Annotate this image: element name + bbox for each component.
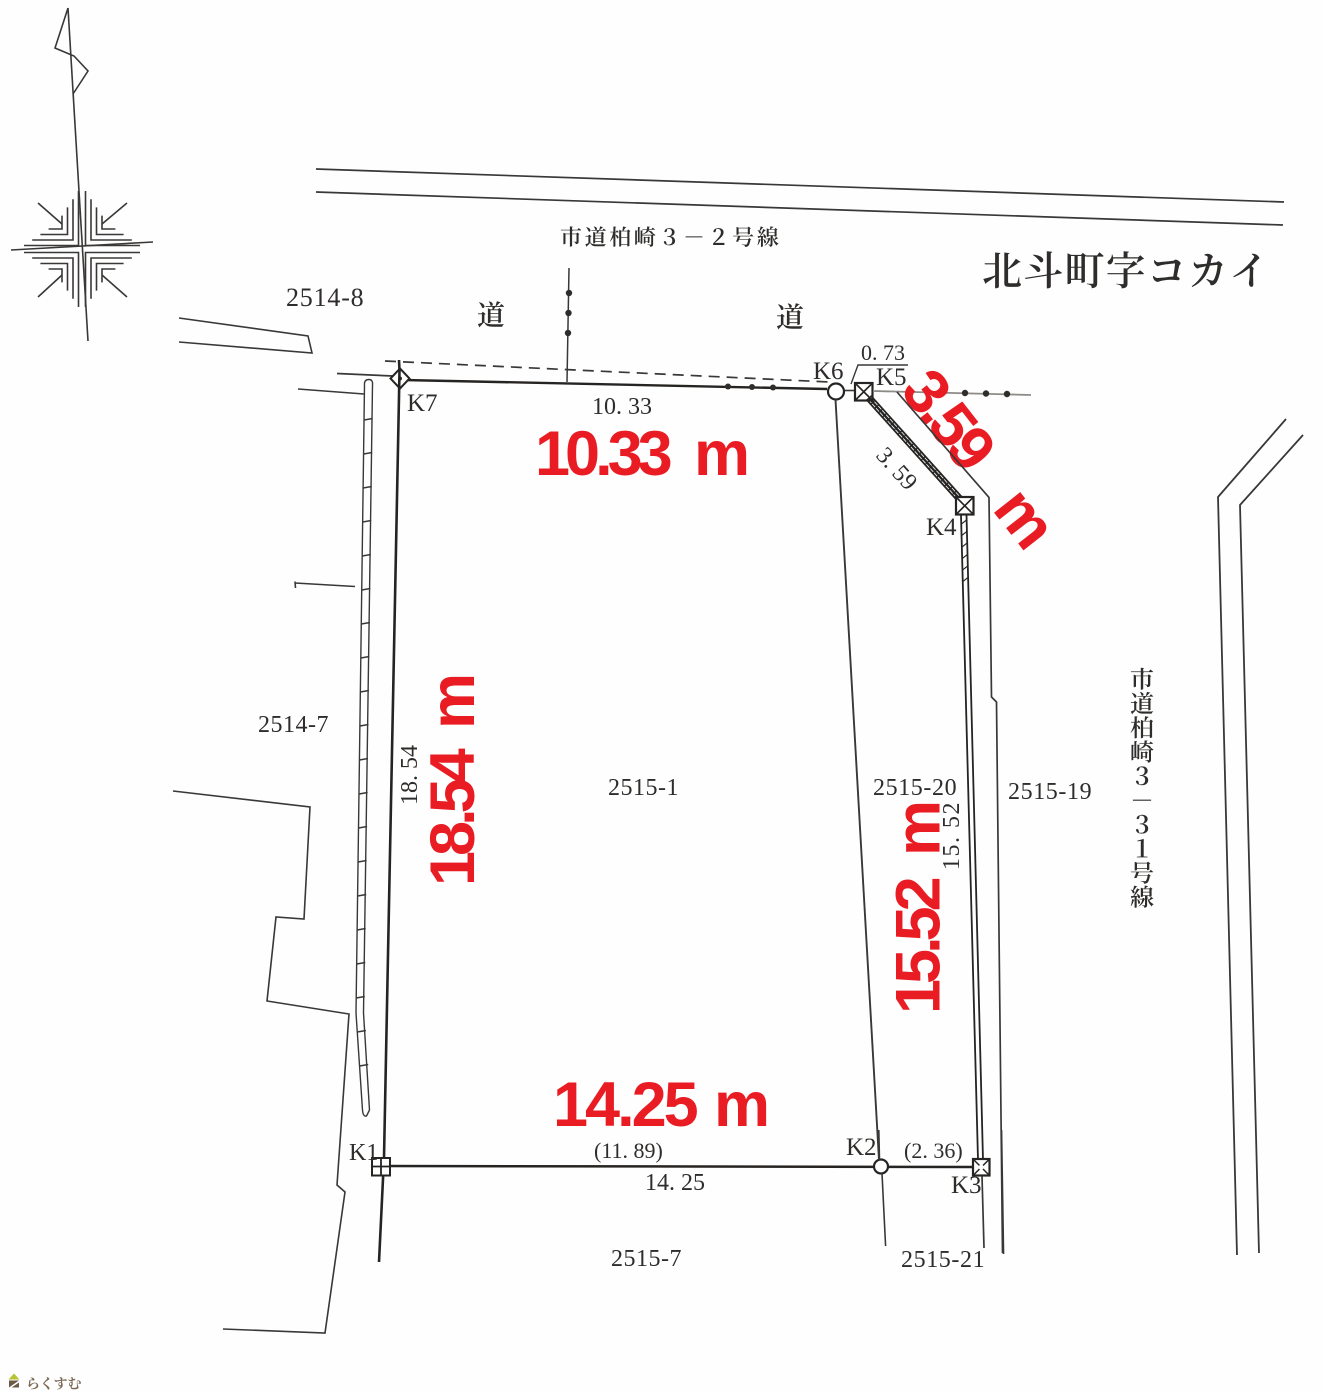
svg-text:K2: K2 <box>846 1134 877 1161</box>
svg-text:m: m <box>418 673 488 729</box>
svg-text:2515-19: 2515-19 <box>1008 779 1092 805</box>
svg-text:2514-7: 2514-7 <box>258 712 329 738</box>
svg-text:m: m <box>694 419 750 489</box>
svg-text:(2. 36): (2. 36) <box>904 1138 963 1163</box>
svg-text:10.33: 10.33 <box>535 419 671 489</box>
svg-text:K3: K3 <box>951 1172 982 1199</box>
svg-text:14.25: 14.25 <box>553 1070 698 1140</box>
svg-text:(11. 89): (11. 89) <box>594 1138 663 1163</box>
svg-text:14. 25: 14. 25 <box>645 1170 705 1196</box>
svg-text:2515-7: 2515-7 <box>611 1246 682 1272</box>
svg-text:2515-21: 2515-21 <box>901 1247 985 1273</box>
svg-text:15.52: 15.52 <box>884 878 954 1014</box>
svg-text:18.54: 18.54 <box>418 748 488 886</box>
svg-text:10. 33: 10. 33 <box>592 394 652 420</box>
svg-text:m: m <box>884 800 954 856</box>
svg-text:m: m <box>714 1070 770 1140</box>
svg-text:2515-1: 2515-1 <box>608 775 679 801</box>
svg-text:2515-20: 2515-20 <box>873 775 957 801</box>
svg-text:2514-8: 2514-8 <box>286 283 364 312</box>
svg-text:0. 73: 0. 73 <box>861 340 905 365</box>
svg-text:K1: K1 <box>349 1140 378 1166</box>
svg-text:K4: K4 <box>926 514 957 541</box>
svg-text:K7: K7 <box>407 390 438 417</box>
svg-text:K5: K5 <box>876 364 907 391</box>
svg-text:K6: K6 <box>813 358 844 385</box>
